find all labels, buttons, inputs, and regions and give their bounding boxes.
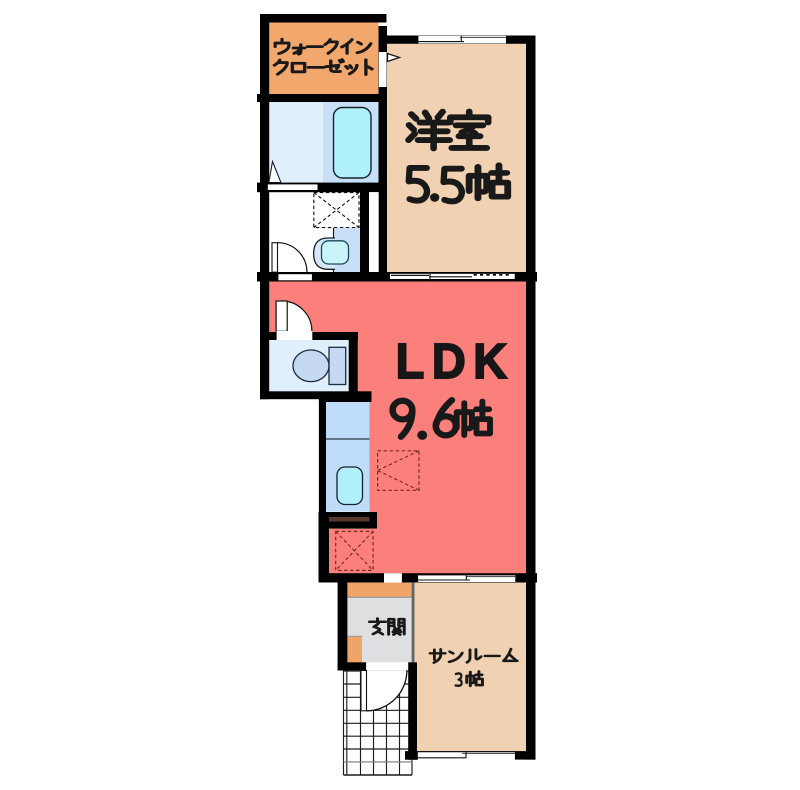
svg-text:LDK: LDK [396, 334, 515, 389]
